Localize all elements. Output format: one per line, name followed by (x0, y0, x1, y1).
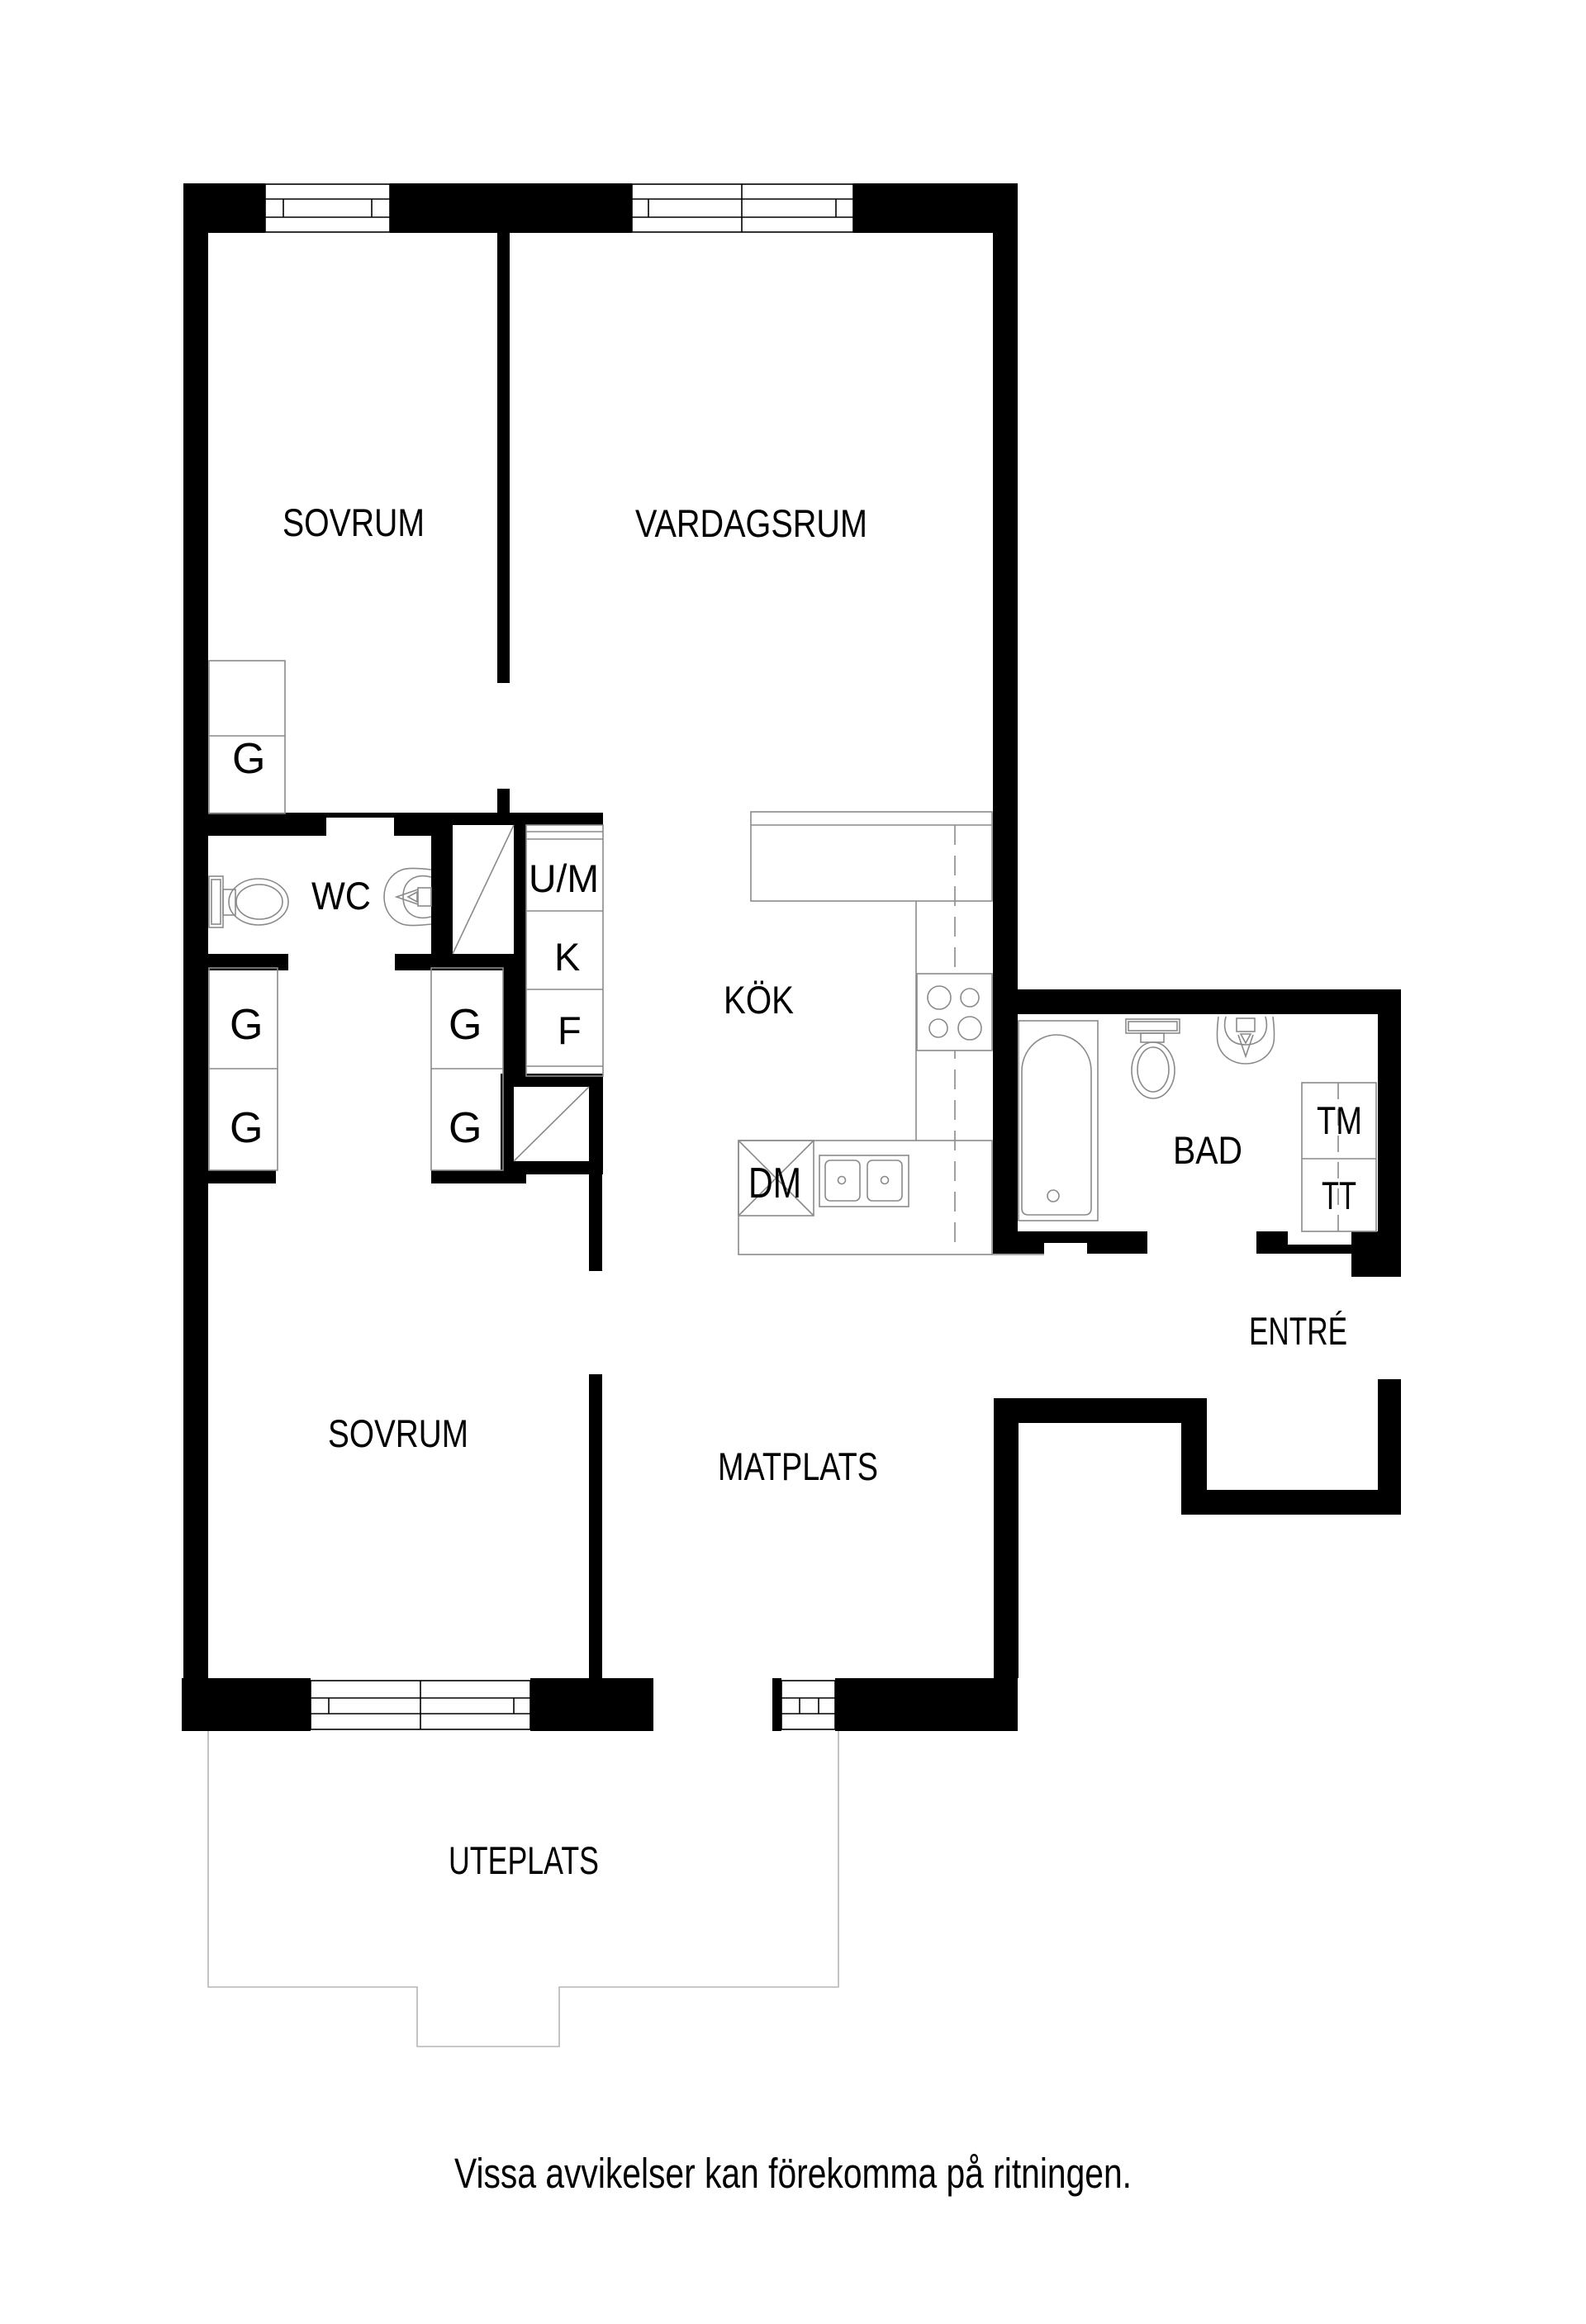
svg-text:G: G (449, 1104, 482, 1152)
svg-text:DM: DM (748, 1160, 801, 1207)
svg-text:KÖK: KÖK (724, 978, 794, 1022)
svg-text:WC: WC (311, 874, 371, 918)
svg-text:MATPLATS: MATPLATS (718, 1444, 878, 1488)
svg-text:F: F (558, 1008, 582, 1052)
svg-text:Vissa avvikelser kan förekomma: Vissa avvikelser kan förekomma på ritnin… (454, 2150, 1132, 2197)
svg-text:BAD: BAD (1173, 1128, 1242, 1172)
svg-text:G: G (230, 1104, 263, 1152)
svg-text:G: G (449, 1001, 482, 1049)
svg-text:G: G (230, 1001, 263, 1049)
svg-text:SOVRUM: SOVRUM (283, 500, 425, 544)
svg-text:UTEPLATS: UTEPLATS (449, 1838, 599, 1882)
svg-text:G: G (232, 735, 265, 783)
svg-text:TM: TM (1317, 1098, 1362, 1142)
svg-text:U/M: U/M (529, 856, 599, 900)
svg-text:K: K (554, 935, 580, 979)
svg-text:SOVRUM: SOVRUM (328, 1411, 468, 1455)
svg-text:VARDAGSRUM: VARDAGSRUM (635, 501, 867, 545)
svg-text:ENTRÉ: ENTRÉ (1249, 1309, 1347, 1353)
svg-text:TT: TT (1322, 1174, 1356, 1217)
